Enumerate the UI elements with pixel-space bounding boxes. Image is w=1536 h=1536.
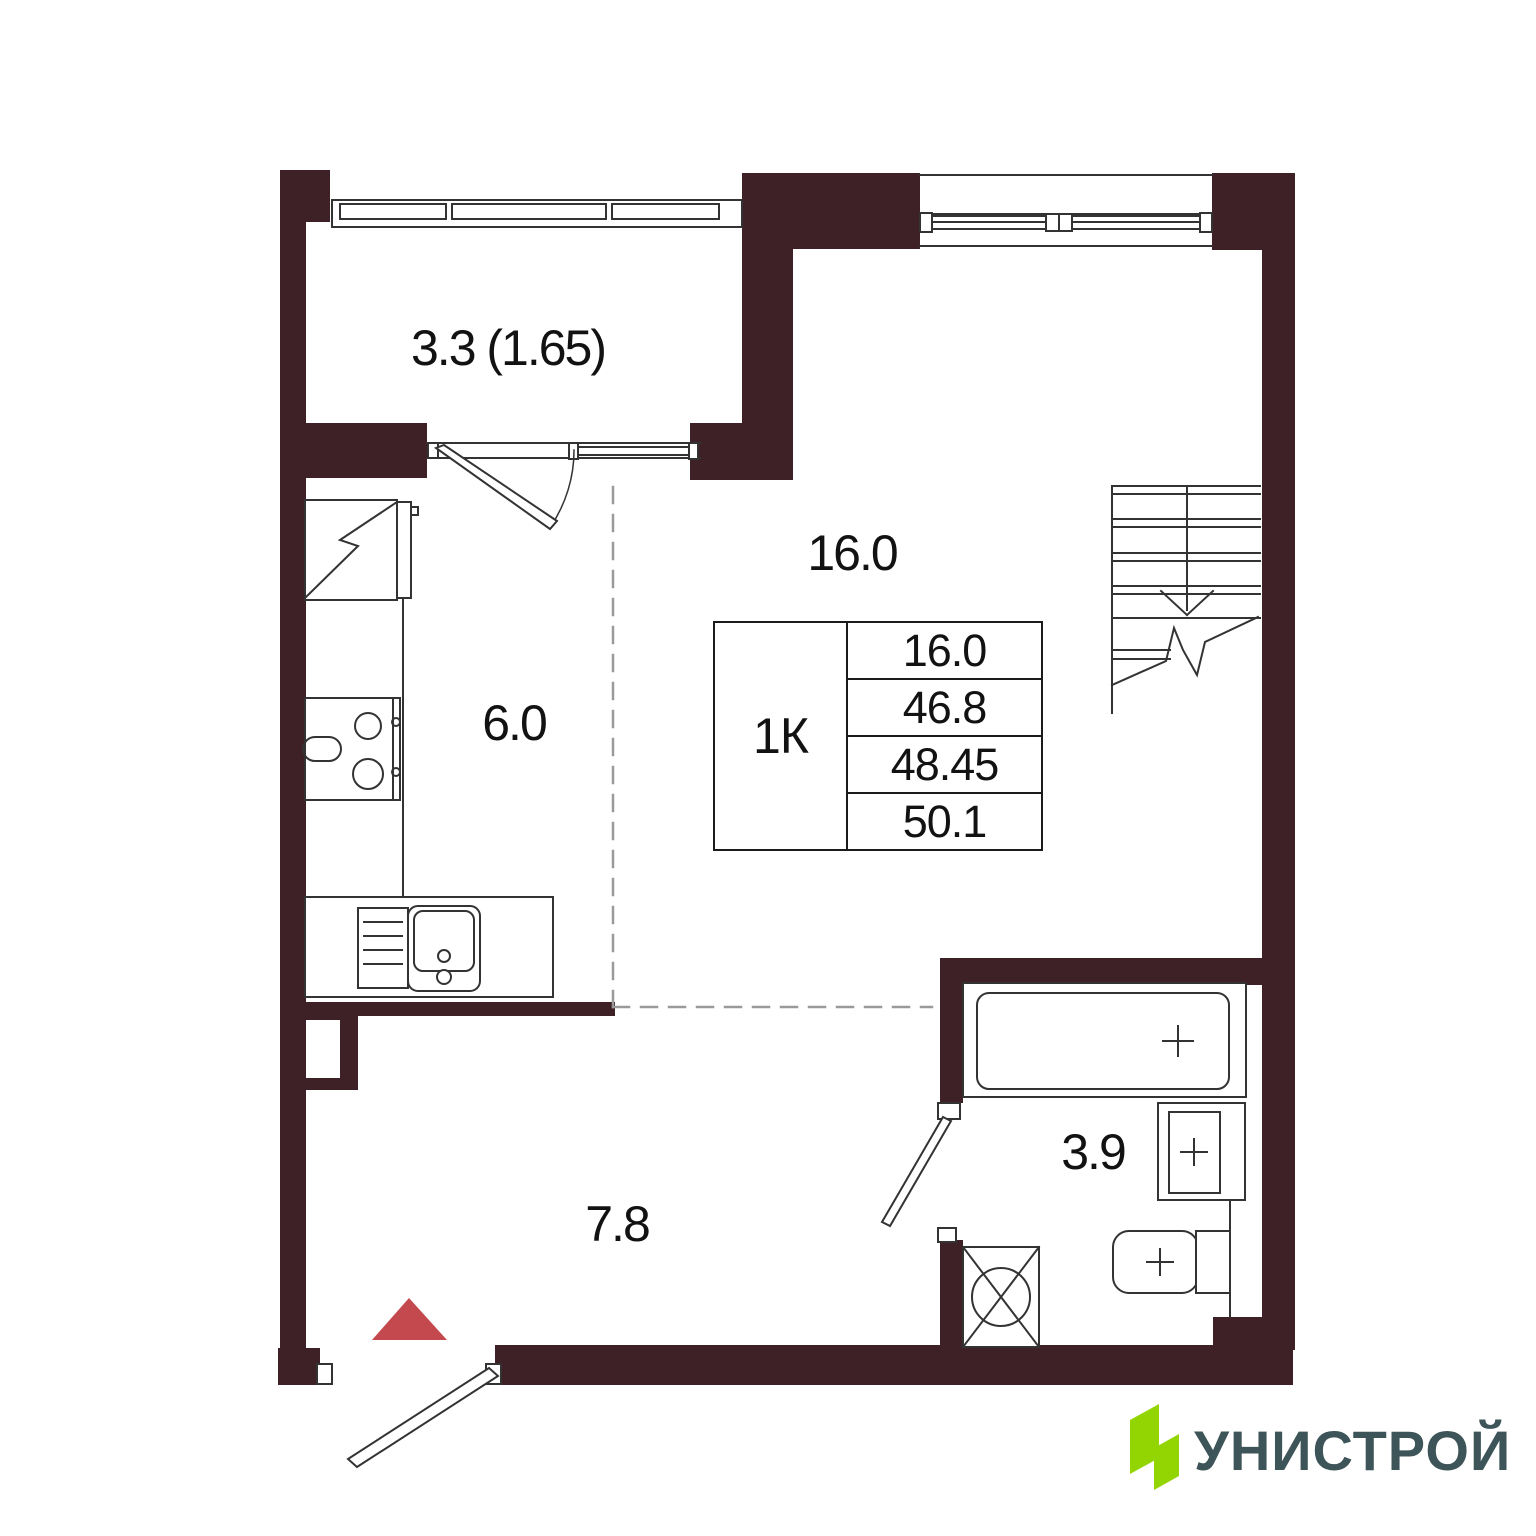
spec-type-cell: 1К [715,623,848,849]
floor-plan-page: 3.3 (1.65) 16.0 6.0 7.8 3.9 1К 16.0 46.8… [0,0,1536,1536]
washing-machine [963,1247,1039,1347]
toilet [1113,1231,1230,1293]
unistroy-logo: УНИСТРОЙ [1128,1402,1511,1494]
balcony-door [427,443,700,529]
entry-door [317,1364,501,1467]
balcony-window [332,200,742,227]
spec-value-cell: 48.45 [848,735,1041,792]
entry-arrow [372,1298,447,1340]
kitchen-fridge [305,500,418,600]
spec-values-column: 16.0 46.8 48.45 50.1 [848,623,1041,849]
apartment-spec-table: 1К 16.0 46.8 48.45 50.1 [713,621,1043,851]
balcony-area-label: 3.3 (1.65) [411,319,605,377]
staircase [1112,486,1260,713]
unistroy-logo-icon [1128,1402,1182,1494]
bathtub [963,983,1246,1097]
bathroom-door [882,1103,960,1242]
unistroy-logo-text: УНИСТРОЙ [1194,1417,1511,1479]
spec-value-cell: 50.1 [848,792,1041,849]
washbasin [1158,1103,1245,1200]
bathroom-area-label: 3.9 [1061,1123,1125,1181]
living-room-window [920,175,1212,246]
kitchen-area-label: 6.0 [482,694,546,752]
spec-value-cell: 16.0 [848,623,1041,678]
hallway-area-label: 7.8 [585,1195,649,1253]
living-area-label: 16.0 [807,524,896,582]
spec-value-cell: 46.8 [848,678,1041,735]
kitchen-stove [303,698,400,800]
kitchen-sink-counter [305,897,553,997]
